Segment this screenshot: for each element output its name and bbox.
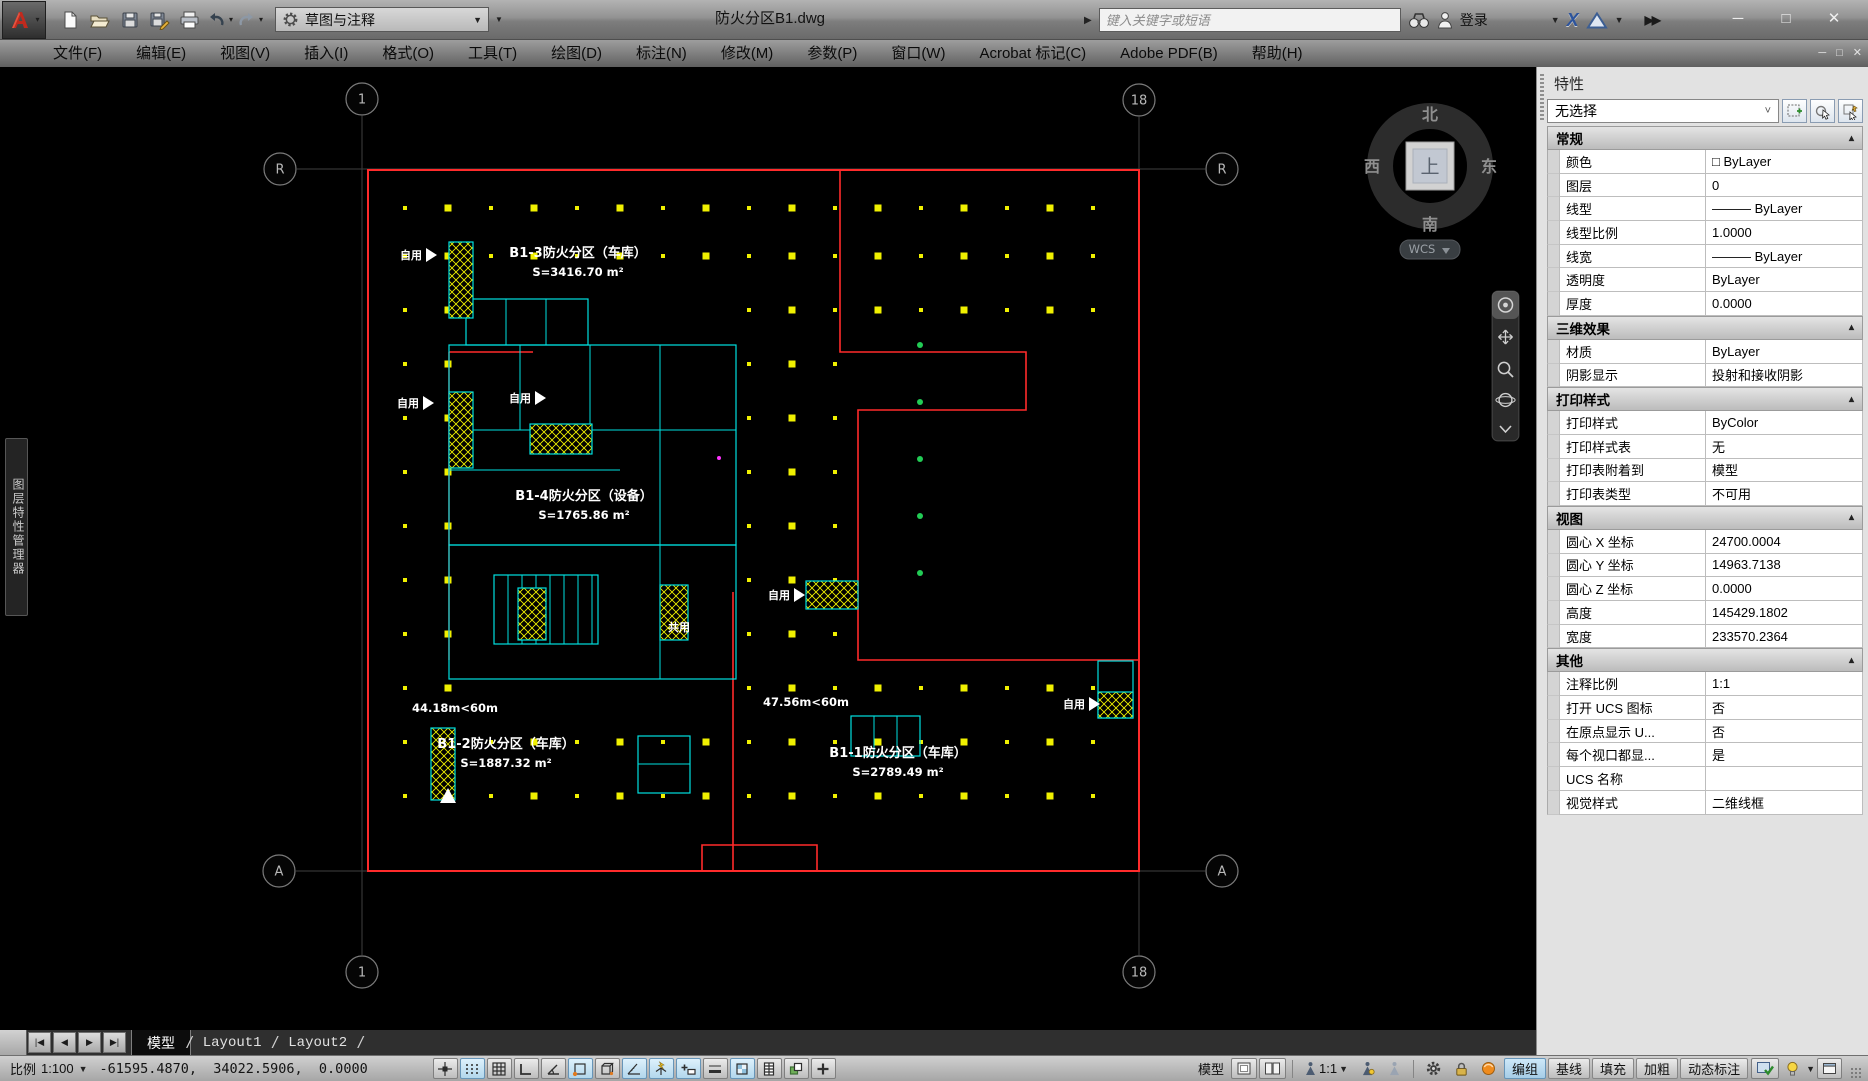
- workspace-switcher[interactable]: 草图与注释 ▼: [275, 7, 489, 32]
- lineweight-display-toggle-button[interactable]: [703, 1058, 728, 1079]
- room-use-label: 自用: [1063, 697, 1085, 711]
- sprinkler-dot: [917, 342, 923, 348]
- property-section-header[interactable]: 常规▴: [1547, 126, 1863, 150]
- layer-properties-manager-collapsed-bar[interactable]: 图层特性管理器: [5, 438, 28, 616]
- menu-item[interactable]: 工具(T): [451, 40, 534, 67]
- column-grid-marker: [617, 793, 624, 800]
- infocenter-collapse-icon[interactable]: ▶: [1084, 15, 1092, 26]
- column-grid-marker: [789, 415, 796, 422]
- new-file-button[interactable]: [56, 7, 83, 33]
- property-label: 颜色: [1559, 150, 1705, 174]
- property-row: 颜色□ ByLayer: [1547, 150, 1863, 174]
- property-value[interactable]: ——— ByLayer: [1705, 245, 1863, 269]
- last-tab-button[interactable]: ▶|: [103, 1032, 126, 1053]
- property-row-gutter: [1547, 364, 1559, 388]
- grid-bubble-label: A: [1218, 865, 1227, 880]
- viewcube-west-label: 西: [1364, 157, 1380, 176]
- column-grid-marker: [747, 794, 751, 798]
- quick-view-drawings-button[interactable]: [1259, 1058, 1286, 1079]
- infer-constraints-toggle-button[interactable]: [811, 1058, 836, 1079]
- viewport-scale-dropdown[interactable]: 比例 1:100 ▼: [4, 1059, 93, 1078]
- property-value[interactable]: 233570.2364: [1705, 625, 1863, 649]
- annotation-scale-value: 1:1: [1319, 1061, 1337, 1076]
- stair-hatch: [449, 392, 473, 468]
- menu-item[interactable]: 修改(M): [704, 40, 791, 67]
- selection-dropdown[interactable]: 无选择 ˅: [1547, 99, 1779, 123]
- column-grid-marker: [1091, 686, 1095, 690]
- property-row-gutter: [1547, 672, 1559, 696]
- first-tab-button[interactable]: |◀: [28, 1032, 51, 1053]
- annotation-scale-button[interactable]: 1:1 ▼: [1299, 1058, 1353, 1079]
- column-grid-marker: [445, 205, 452, 212]
- chevron-down-icon: ˅: [1765, 105, 1771, 117]
- property-row: 线型——— ByLayer: [1547, 197, 1863, 221]
- room-use-label: 自用: [397, 396, 419, 410]
- quick-view-layouts-button[interactable]: [1231, 1058, 1257, 1079]
- property-value[interactable]: 二维线框: [1705, 791, 1863, 815]
- property-row-gutter: [1547, 197, 1559, 221]
- property-value[interactable]: [1705, 767, 1863, 791]
- stair-hatch: [1098, 692, 1133, 718]
- window-title: 防火分区B1.dwg: [560, 0, 980, 38]
- evacuation-triangle-marker: [426, 248, 437, 262]
- title-bar: ▾: [0, 0, 1868, 40]
- property-value[interactable]: 1:1: [1705, 672, 1863, 696]
- property-value[interactable]: 1.0000: [1705, 221, 1863, 245]
- redo-button[interactable]: ▾: [236, 7, 263, 33]
- menu-item[interactable]: 文件(F): [36, 40, 119, 67]
- column-grid-marker: [403, 632, 407, 636]
- property-row-gutter: [1547, 340, 1559, 364]
- property-row-gutter: [1547, 743, 1559, 767]
- plugin-toggle-button[interactable]: 填充: [1592, 1058, 1634, 1079]
- grid-bubble-label: 1: [358, 93, 366, 108]
- fire-zone-area-label: S=1887.32 m²: [460, 756, 551, 770]
- property-value[interactable]: 是: [1705, 743, 1863, 767]
- object-snap-icon: [572, 1061, 588, 1077]
- layout-tab[interactable]: Layout2: [273, 1030, 362, 1055]
- column-grid-marker: [747, 632, 751, 636]
- plugin-toggle-button[interactable]: 动态标注: [1680, 1058, 1748, 1079]
- polar-tracking-icon: [545, 1061, 561, 1077]
- column-grid-marker: [1005, 794, 1009, 798]
- menu-item[interactable]: 插入(I): [287, 40, 365, 67]
- autoscale-annotations-button[interactable]: [1382, 1058, 1407, 1079]
- property-value[interactable]: 0: [1705, 174, 1863, 198]
- property-row-gutter: [1547, 530, 1559, 554]
- coordinates-display[interactable]: -61595.4870, 34022.5906, 0.0000: [99, 1061, 367, 1077]
- toolbar-overflow-button[interactable]: ▶▶: [1645, 13, 1659, 27]
- save-button[interactable]: [116, 7, 143, 33]
- dynamic-ucs-icon: [653, 1061, 669, 1077]
- fire-zone-label: B1-2防火分区（车库）: [437, 736, 574, 752]
- property-row: 视觉样式二维线框: [1547, 791, 1863, 815]
- collapse-arrow-icon[interactable]: ▴: [1849, 322, 1854, 333]
- transparency-toggle-button[interactable]: [730, 1058, 755, 1079]
- property-row: 打印样式ByColor: [1547, 411, 1863, 435]
- property-row: 宽度233570.2364: [1547, 625, 1863, 649]
- fire-zone-area-label: S=3416.70 m²: [532, 265, 623, 279]
- polar-tracking-toggle-button[interactable]: [541, 1058, 566, 1079]
- drawings-icon: [1264, 1061, 1281, 1076]
- room-use-label: 自用: [400, 248, 422, 262]
- column-grid-marker: [919, 206, 923, 210]
- column-grid-marker: [489, 794, 493, 798]
- annotation-visibility-icon: [1360, 1061, 1375, 1076]
- layout-tab-bar: |◀ ◀ ▶ ▶| 模型/Layout1/Layout2/: [0, 1030, 1536, 1055]
- property-row-gutter: [1547, 150, 1559, 174]
- plugin-toggle-button[interactable]: 编组: [1504, 1058, 1546, 1079]
- drawing-canvas[interactable]: B1-3防火分区（车库）S=3416.70 m²B1-4防火分区（设备）S=17…: [30, 67, 1536, 1030]
- pickadd-toggle-button[interactable]: [1782, 99, 1807, 123]
- stair-hatch: [449, 242, 473, 318]
- menu-item[interactable]: 参数(P): [790, 40, 874, 67]
- property-label: 在原点显示 U...: [1559, 720, 1705, 744]
- fire-zone-area-label: S=2789.49 m²: [852, 765, 943, 779]
- column-grid-marker: [789, 685, 796, 692]
- column-grid-marker: [833, 206, 837, 210]
- column-grid-marker: [875, 739, 882, 746]
- room-use-label: 自用: [509, 391, 531, 405]
- column-grid-marker: [1005, 740, 1009, 744]
- column-grid-marker: [789, 577, 796, 584]
- property-row-gutter: [1547, 482, 1559, 506]
- property-label: 圆心 Z 坐标: [1559, 577, 1705, 601]
- selection-dropdown-value: 无选择: [1555, 101, 1597, 121]
- navigation-wheel-hub: [1503, 303, 1508, 308]
- column-grid-marker: [833, 308, 837, 312]
- column-grid-marker: [747, 740, 751, 744]
- sprinkler-dot: [917, 399, 923, 405]
- annotation-monitor-button[interactable]: [1751, 1058, 1779, 1079]
- column-grid-marker: [575, 740, 579, 744]
- property-row-gutter: [1547, 245, 1559, 269]
- ortho-mode-toggle-button[interactable]: [514, 1058, 539, 1079]
- quick-properties-toggle-button[interactable]: [757, 1058, 782, 1079]
- open-file-button[interactable]: [86, 7, 113, 33]
- collapse-arrow-icon[interactable]: ▴: [1849, 655, 1854, 666]
- menu-item[interactable]: 帮助(H): [1235, 40, 1320, 67]
- menu-item[interactable]: 视图(V): [203, 40, 287, 67]
- property-label: 打印表类型: [1559, 482, 1705, 506]
- undo-icon: [206, 10, 228, 30]
- maximize-button[interactable]: □: [1762, 2, 1810, 34]
- property-section-header[interactable]: 打印样式▴: [1547, 387, 1863, 411]
- property-value[interactable]: 不可用: [1705, 482, 1863, 506]
- property-label: 线宽: [1559, 245, 1705, 269]
- save-as-button[interactable]: [146, 7, 173, 33]
- column-grid-marker: [875, 205, 882, 212]
- menu-bar: 文件(F)编辑(E)视图(V)插入(I)格式(O)工具(T)绘图(D)标注(N)…: [0, 40, 1868, 67]
- fire-zone-area-label: S=1765.86 m²: [538, 508, 629, 522]
- doc-close-icon[interactable]: ✕: [1853, 42, 1862, 64]
- clean-screen-button[interactable]: [1817, 1058, 1842, 1079]
- column-grid-marker: [531, 793, 538, 800]
- tab-bar-corner: [0, 1030, 27, 1055]
- snap-mode-toggle-button[interactable]: [433, 1058, 458, 1079]
- property-label: 厚度: [1559, 292, 1705, 316]
- undo-caret-icon[interactable]: ▾: [229, 15, 233, 24]
- selection-cycling-toggle-button[interactable]: [784, 1058, 809, 1079]
- property-sections: 常规▴颜色□ ByLayer图层0线型——— ByLayer线型比例1.0000…: [1547, 126, 1863, 815]
- property-value[interactable]: □ ByLayer: [1705, 150, 1863, 174]
- property-value[interactable]: 145429.1802: [1705, 601, 1863, 625]
- column-grid-marker: [747, 206, 751, 210]
- column-grid-marker: [403, 794, 407, 798]
- evacuation-triangle-marker: [423, 396, 434, 410]
- column-grid-marker: [445, 523, 452, 530]
- property-section-title: 常规: [1556, 128, 1583, 148]
- property-label: 圆心 X 坐标: [1559, 530, 1705, 554]
- plugin-toggle-button[interactable]: 加粗: [1636, 1058, 1678, 1079]
- 3d-object-snap-toggle-button[interactable]: [595, 1058, 620, 1079]
- property-value[interactable]: 投射和接收阴影: [1705, 364, 1863, 388]
- properties-palette: 特性 无选择 ˅: [1536, 67, 1868, 1055]
- property-row: 打开 UCS 图标否: [1547, 696, 1863, 720]
- property-row: 线型比例1.0000: [1547, 221, 1863, 245]
- redo-caret-icon[interactable]: ▾: [259, 15, 263, 24]
- annotation-monitor-icon: [1756, 1061, 1774, 1076]
- menu-item[interactable]: 标注(N): [619, 40, 704, 67]
- column-grid-marker: [1005, 308, 1009, 312]
- plot-button[interactable]: [176, 7, 203, 33]
- property-row: 打印样式表无: [1547, 435, 1863, 459]
- column-grid-marker: [875, 253, 882, 260]
- column-grid-marker: [489, 206, 493, 210]
- dynamic-ucs-toggle-button[interactable]: [649, 1058, 674, 1079]
- property-value[interactable]: ByColor: [1705, 411, 1863, 435]
- column-grid-marker: [961, 205, 968, 212]
- layout-icon: [1236, 1061, 1252, 1076]
- palette-header: 无选择 ˅: [1547, 99, 1863, 125]
- menu-item[interactable]: 格式(O): [365, 40, 451, 67]
- property-row: 打印表附着到模型: [1547, 459, 1863, 483]
- column-grid-marker: [833, 470, 837, 474]
- menu-item[interactable]: Acrobat 标记(C): [962, 40, 1103, 67]
- evacuation-triangle-marker: [794, 588, 805, 602]
- gear-icon: [1425, 1060, 1442, 1077]
- room-use-label: 自用: [768, 588, 790, 602]
- search-binoculars-icon[interactable]: [1408, 11, 1430, 29]
- menu-item[interactable]: 绘图(D): [534, 40, 619, 67]
- property-section-title: 其他: [1556, 650, 1583, 670]
- application-menu-button[interactable]: ▾: [2, 1, 46, 39]
- performance-tuner-button[interactable]: [1476, 1058, 1501, 1079]
- property-section-header[interactable]: 视图▴: [1547, 506, 1863, 530]
- column-grid-marker: [919, 308, 923, 312]
- column-grid-marker: [747, 254, 751, 258]
- grid-bubble-label: 18: [1131, 966, 1148, 981]
- column-grid-marker: [789, 253, 796, 260]
- object-snap-toggle-button[interactable]: [568, 1058, 593, 1079]
- property-row-gutter: [1547, 459, 1559, 483]
- column-grid-marker: [703, 739, 710, 746]
- search-input[interactable]: [1099, 8, 1401, 32]
- grid-display-toggle-button[interactable]: [487, 1058, 512, 1079]
- column-grid-marker: [961, 739, 968, 746]
- column-grid-marker: [403, 524, 407, 528]
- exchange-apps-icon[interactable]: X: [1567, 10, 1579, 31]
- property-row-gutter: [1547, 577, 1559, 601]
- sprinkler-dot: [917, 513, 923, 519]
- column-grid-marker: [875, 793, 882, 800]
- column-grid-marker: [789, 307, 796, 314]
- property-row-gutter: [1547, 791, 1559, 815]
- qat-customize-button[interactable]: ▼: [495, 15, 503, 24]
- property-label: 打开 UCS 图标: [1559, 696, 1705, 720]
- column-grid-marker: [403, 206, 407, 210]
- save-as-icon: [149, 10, 170, 30]
- grid-bubble-label: R: [1217, 163, 1226, 178]
- lock-icon: [1454, 1061, 1469, 1077]
- lineweight-display-icon: [707, 1061, 723, 1077]
- property-label: 宽度: [1559, 625, 1705, 649]
- property-value[interactable]: 模型: [1705, 459, 1863, 483]
- status-overflow-caret-icon[interactable]: ▼: [1806, 1064, 1815, 1074]
- quick-properties-icon: [761, 1061, 777, 1077]
- property-row: 圆心 X 坐标24700.0004: [1547, 530, 1863, 554]
- property-value[interactable]: 无: [1705, 435, 1863, 459]
- a360-icon[interactable]: [1586, 11, 1608, 30]
- property-value[interactable]: 0.0000: [1705, 292, 1863, 316]
- property-label: 打印样式表: [1559, 435, 1705, 459]
- doc-minimize-icon[interactable]: ─: [1818, 42, 1826, 64]
- grid-display-dots-toggle-button[interactable]: [460, 1058, 485, 1079]
- minimize-button[interactable]: ─: [1714, 2, 1762, 34]
- doc-restore-icon[interactable]: □: [1836, 42, 1843, 64]
- sprinkler-dot: [917, 456, 923, 462]
- palette-grip[interactable]: [1540, 74, 1544, 122]
- infocenter: ▶ 登录 ▼ X ▼ ▶▶: [1084, 8, 1659, 32]
- toolbar-lock-button[interactable]: [1449, 1058, 1474, 1079]
- column-grid-marker: [747, 362, 751, 366]
- property-value[interactable]: 14963.7138: [1705, 554, 1863, 578]
- model-space-button[interactable]: 模型: [1193, 1058, 1229, 1079]
- workspace-switching-button[interactable]: [1420, 1058, 1447, 1079]
- quick-access-toolbar: ▾ ▾: [56, 7, 263, 33]
- select-objects-button[interactable]: [1810, 99, 1835, 123]
- property-section-header[interactable]: 其他▴: [1547, 648, 1863, 672]
- collapse-arrow-icon[interactable]: ▴: [1849, 512, 1854, 523]
- property-value[interactable]: ByLayer: [1705, 340, 1863, 364]
- column-grid-marker: [1047, 205, 1054, 212]
- property-value[interactable]: 0.0000: [1705, 577, 1863, 601]
- column-grid-marker: [747, 416, 751, 420]
- previous-tab-button[interactable]: ◀: [53, 1032, 76, 1053]
- menu-item[interactable]: 窗口(W): [874, 40, 962, 67]
- clean-screen-icon: [1822, 1062, 1837, 1075]
- property-row-gutter: [1547, 174, 1559, 198]
- printer-icon: [179, 10, 200, 30]
- collapse-arrow-icon[interactable]: ▴: [1849, 394, 1854, 405]
- cad-drawing[interactable]: B1-3防火分区（车库）S=3416.70 m²B1-4防火分区（设备）S=17…: [30, 67, 1536, 1030]
- property-section-header[interactable]: 三维效果▴: [1547, 316, 1863, 340]
- property-label: UCS 名称: [1559, 767, 1705, 791]
- next-tab-button[interactable]: ▶: [78, 1032, 101, 1053]
- layout-tab[interactable]: Layout1: [188, 1030, 277, 1055]
- layout-tab[interactable]: 模型: [131, 1030, 191, 1055]
- grid-bubble-label: 18: [1131, 94, 1148, 109]
- property-section-title: 视图: [1556, 508, 1583, 528]
- drafting-toggles: [432, 1058, 837, 1079]
- property-value[interactable]: ——— ByLayer: [1705, 197, 1863, 221]
- column-grid-marker: [403, 362, 407, 366]
- column-grid-marker: [403, 416, 407, 420]
- quick-select-icon: [1842, 103, 1859, 120]
- property-row-gutter: [1547, 554, 1559, 578]
- grid-display-icon: [491, 1061, 507, 1077]
- column-grid-marker: [1005, 254, 1009, 258]
- signin-caret-icon[interactable]: ▼: [1551, 15, 1560, 25]
- workspace-gear-icon: [282, 11, 299, 28]
- property-label: 视觉样式: [1559, 791, 1705, 815]
- undo-button[interactable]: ▾: [206, 7, 233, 33]
- plugin-toggle-button[interactable]: 基线: [1548, 1058, 1590, 1079]
- object-snap-tracking-toggle-button[interactable]: [622, 1058, 647, 1079]
- resize-grip[interactable]: [1850, 1067, 1862, 1079]
- column-grid-marker: [1091, 206, 1095, 210]
- collapse-arrow-icon[interactable]: ▴: [1849, 133, 1854, 144]
- a360-caret-icon[interactable]: ▼: [1615, 15, 1624, 25]
- property-label: 透明度: [1559, 268, 1705, 292]
- property-value[interactable]: 24700.0004: [1705, 530, 1863, 554]
- stair-hatch: [518, 588, 546, 640]
- annotation-visibility-button[interactable]: [1355, 1058, 1380, 1079]
- ortho-mode-icon: [518, 1061, 534, 1077]
- column-grid-marker: [617, 205, 624, 212]
- menu-item[interactable]: 编辑(E): [119, 40, 203, 67]
- column-grid-marker: [661, 206, 665, 210]
- tab-divider: /: [358, 1033, 363, 1053]
- property-value[interactable]: ByLayer: [1705, 268, 1863, 292]
- open-folder-icon: [89, 10, 110, 30]
- workspace-label: 草图与注释: [305, 10, 467, 30]
- column-grid-marker: [617, 739, 624, 746]
- tabs: 模型/Layout1/Layout2/: [131, 1030, 359, 1055]
- dynamic-input-toggle-button[interactable]: [676, 1058, 701, 1079]
- property-row-gutter: [1547, 411, 1559, 435]
- grid-display-dots-icon: [464, 1061, 480, 1077]
- menu-item[interactable]: Adobe PDF(B): [1103, 40, 1235, 67]
- close-button[interactable]: ✕: [1810, 2, 1858, 34]
- column-grid-marker: [403, 578, 407, 582]
- viewcube-east-label: 东: [1481, 157, 1497, 176]
- column-grid-marker: [403, 686, 407, 690]
- column-grid-marker: [747, 470, 751, 474]
- property-row: 厚度0.0000: [1547, 292, 1863, 316]
- grid-bubble-label: R: [275, 163, 284, 178]
- property-label: 线型: [1559, 197, 1705, 221]
- column-grid-marker: [489, 254, 493, 258]
- column-grid-marker: [1091, 308, 1095, 312]
- property-value[interactable]: 否: [1705, 720, 1863, 744]
- viewcube-south-label: 南: [1422, 215, 1438, 234]
- grid-bubble-label: A: [275, 865, 284, 880]
- point-marker: [717, 456, 721, 460]
- property-row: 透明度ByLayer: [1547, 268, 1863, 292]
- column-grid-marker: [1047, 253, 1054, 260]
- property-label: 线型比例: [1559, 221, 1705, 245]
- column-grid-marker: [1047, 739, 1054, 746]
- isolate-objects-button[interactable]: [1781, 1058, 1804, 1079]
- property-label: 高度: [1559, 601, 1705, 625]
- property-row-gutter: [1547, 268, 1559, 292]
- status-right-group: 模型 1:1 ▼: [1193, 1058, 1864, 1079]
- column-grid-marker: [403, 308, 407, 312]
- property-value[interactable]: 否: [1705, 696, 1863, 720]
- quick-select-button[interactable]: [1838, 99, 1863, 123]
- signin-button[interactable]: 登录: [1460, 10, 1488, 30]
